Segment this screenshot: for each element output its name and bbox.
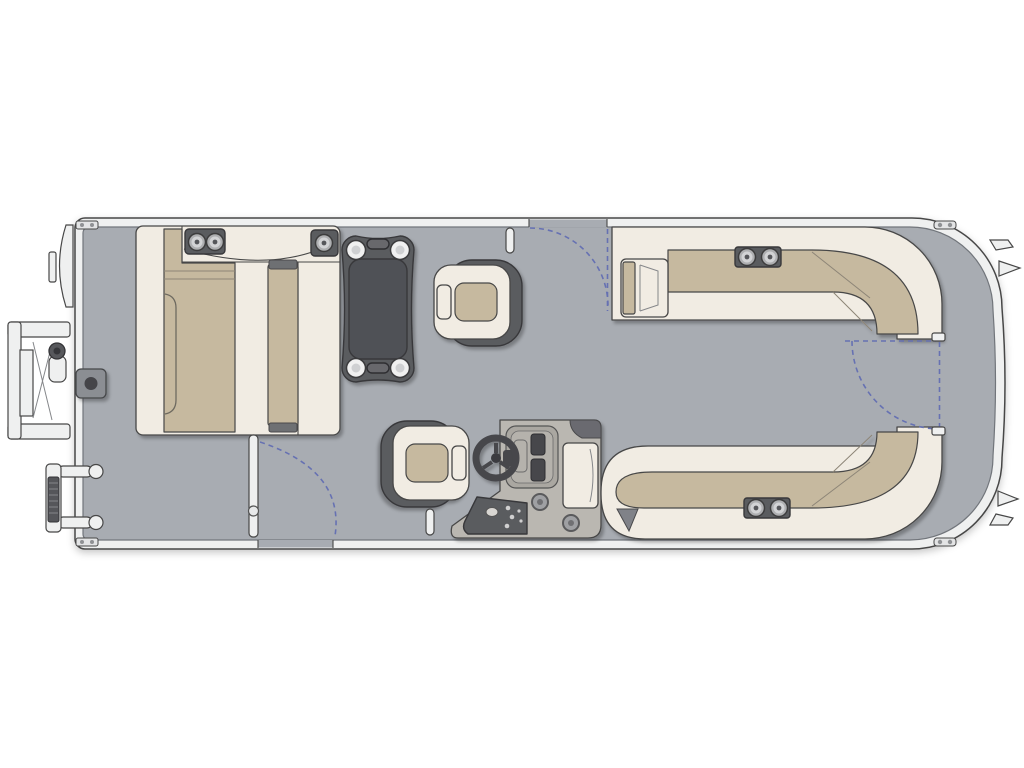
cupholder-icon (771, 500, 788, 517)
gate-post-top (932, 333, 945, 341)
table-handle-top (367, 239, 389, 249)
bow-gate-panel (60, 225, 74, 307)
bow-tab (49, 252, 56, 282)
cupholder-icon (762, 249, 779, 266)
chair-front-pad (452, 446, 466, 480)
gauge-cluster (531, 434, 545, 455)
cushion-end-cap-bottom (269, 423, 297, 432)
bow-hinge-bottom (76, 538, 98, 546)
gate-hinge (249, 506, 259, 516)
pontoon-floorplan (0, 0, 1024, 768)
table-cupholder-icon (347, 241, 366, 260)
table-handle-bottom (367, 363, 389, 373)
kick-panel-gauge (486, 508, 498, 517)
table-cupholder-icon (391, 241, 410, 260)
deck-speaker-icon (563, 515, 579, 531)
stern-cleat-bottom (934, 538, 956, 546)
motor-fin-top (999, 261, 1020, 276)
gate-latch-post (506, 228, 514, 253)
chair-cushion (406, 444, 448, 482)
gate-latch-post (426, 509, 434, 535)
motor-fin-bottom (998, 491, 1018, 506)
stern-bracket-tab-bottom (990, 514, 1013, 525)
gauge-cluster (531, 459, 545, 481)
table-cupholder-icon (347, 359, 366, 378)
bow-lounge-cushion-right (268, 264, 298, 426)
chair-front-pad (437, 285, 451, 319)
stern-cleat-top (934, 221, 956, 229)
dinette-table (342, 236, 414, 382)
gate-open-bar (249, 435, 258, 537)
bow-lounge (136, 226, 340, 435)
floorplan-canvas (0, 0, 1024, 768)
table-cupholder-icon (391, 359, 410, 378)
bow-side-ladder (8, 322, 70, 439)
stern-bracket-tab-top (990, 240, 1013, 250)
chair-cushion (455, 283, 497, 321)
cupholder-icon (189, 234, 206, 251)
cupholder-icon (748, 500, 765, 517)
ladder-grip (48, 477, 59, 522)
cupholder-icon (739, 249, 756, 266)
captain-chair-forward (434, 260, 522, 346)
bow-hinge-top (76, 221, 98, 229)
table-top (349, 259, 407, 359)
cupholder-icon (316, 235, 333, 252)
deck-speaker-icon (532, 494, 548, 510)
gate-post-bottom (932, 427, 945, 435)
cushion-end-cap-top (269, 260, 297, 269)
deck-table-base-fitting (76, 369, 106, 398)
captain-chair-helm (381, 421, 469, 507)
cupholder-icon (207, 234, 224, 251)
